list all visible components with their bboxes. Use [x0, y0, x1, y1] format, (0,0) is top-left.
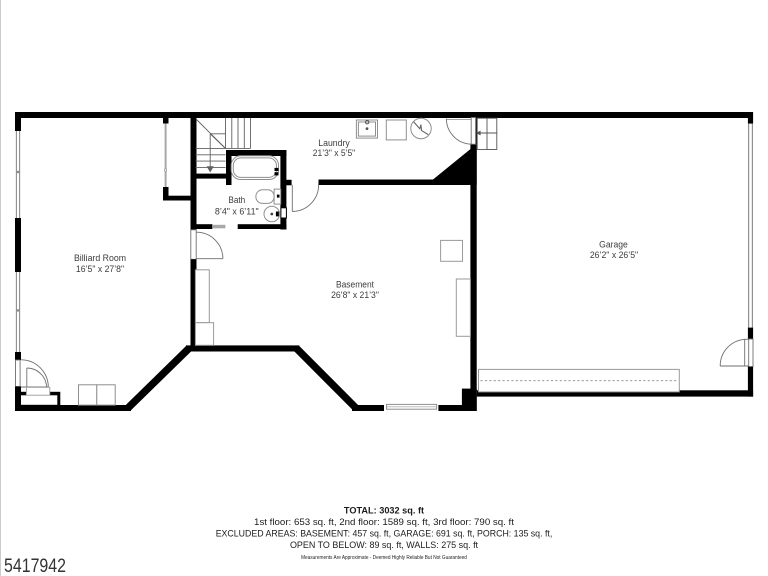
svg-text:Basement: Basement: [336, 279, 374, 290]
svg-text:1st floor: 653 sq. ft, 2nd flo: 1st floor: 653 sq. ft, 2nd floor: 1589 s…: [254, 517, 514, 528]
svg-text:8’4" x 6’11": 8’4" x 6’11": [215, 207, 259, 218]
svg-text:16’5" x 27’8": 16’5" x 27’8": [76, 264, 124, 275]
svg-text:TOTAL: 3032 sq. ft: TOTAL: 3032 sq. ft: [344, 506, 425, 517]
svg-text:Garage: Garage: [599, 239, 628, 250]
svg-text:26’2" x 26’5": 26’2" x 26’5": [590, 250, 638, 261]
svg-text:OPEN TO BELOW: 89 sq. ft, WALL: OPEN TO BELOW: 89 sq. ft, WALLS: 275 sq.…: [290, 540, 478, 551]
svg-text:EXCLUDED AREAS: BASEMENT: 457: EXCLUDED AREAS: BASEMENT: 457 sq. ft, GA…: [216, 529, 553, 540]
svg-text:Measurements Are Approximate -: Measurements Are Approximate - Deemed Hi…: [301, 555, 467, 561]
svg-text:Bath: Bath: [228, 195, 245, 206]
svg-text:26’8" x 21’3": 26’8" x 21’3": [331, 290, 379, 301]
svg-text:Billiard Room: Billiard Room: [74, 253, 126, 264]
svg-text:21’3" x 5’5": 21’3" x 5’5": [313, 148, 355, 159]
svg-text:5417942: 5417942: [4, 555, 66, 576]
